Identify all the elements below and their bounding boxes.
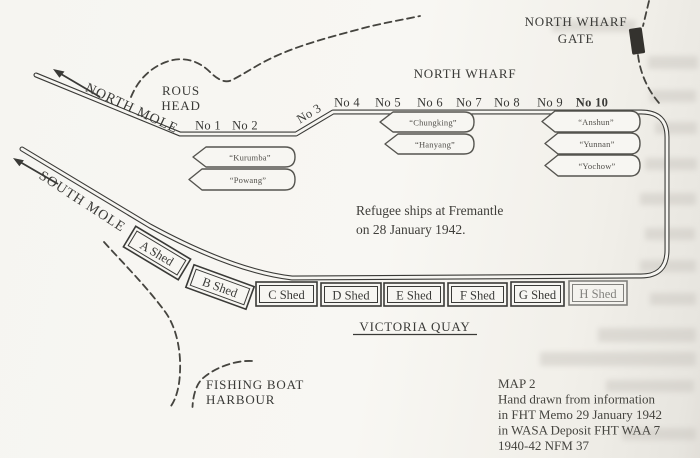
gate-road-upper [643, 1, 649, 26]
shed-h: H Shed [569, 281, 627, 305]
ship-kurumba: “Kurumba” [193, 147, 295, 167]
berth-label-9: No 9 [537, 96, 563, 110]
caption-line-4: in WASA Deposit FHT WAA 7 [498, 423, 661, 438]
caption-line-2: Hand drawn from information [498, 392, 656, 407]
ship-yochow: “Yochow” [545, 155, 640, 176]
berth-label-8: No 8 [494, 96, 520, 110]
ship-hanyang: “Hanyang” [385, 134, 474, 154]
fishing-boat-harbour-label-line2: HARBOUR [206, 392, 275, 407]
shed-a: A Shed [123, 226, 190, 280]
berth-label-6: No 6 [417, 96, 443, 110]
shed-f: F Shed [448, 283, 507, 306]
ship-name: “Chungking” [409, 118, 457, 128]
ship-name: “Yochow” [578, 161, 615, 171]
berth-label-2: No 2 [232, 119, 258, 133]
caption-line-3: in FHT Memo 29 January 1942 [498, 407, 662, 422]
caption-line-5: 1940-42 NFM 37 [498, 438, 590, 453]
berth-label-10: No 10 [576, 96, 608, 110]
shed-label: E Shed [396, 289, 433, 303]
shed-label: F Shed [460, 289, 496, 303]
north-wharf-gate-label-line2: GATE [558, 31, 594, 46]
berth-label-4: No 4 [334, 96, 360, 110]
ship-name: “Yunnan” [579, 139, 614, 149]
rous-head-label-line1: ROUS [162, 83, 200, 98]
fishing-boat-harbour-label-line1: FISHING BOAT [206, 377, 304, 392]
ship-name: “Kurumba” [229, 153, 270, 163]
berth-label-5: No 5 [375, 96, 401, 110]
ship-name: “Hanyang” [415, 140, 455, 150]
shed-e: E Shed [384, 283, 444, 306]
rous-head-label-line2: HEAD [161, 98, 200, 113]
shed-label: H Shed [579, 287, 617, 301]
ship-name: “Powang” [230, 175, 267, 185]
ship-anshun: “Anshun” [542, 111, 640, 132]
shed-label: C Shed [268, 288, 305, 302]
north-wharf-gate-label-line1: NORTH WHARF [525, 14, 628, 29]
shed-g: G Shed [511, 282, 564, 306]
ship-yunnan: “Yunnan” [545, 133, 640, 154]
shed-c: C Shed [256, 282, 317, 306]
ship-chungking: “Chungking” [380, 112, 474, 132]
berth-label-7: No 7 [456, 96, 482, 110]
shed-label: G Shed [519, 288, 557, 302]
berth-label-1: No 1 [195, 119, 221, 133]
map-svg: “Kurumba” “Powang” “Chungking” “Hanyang”… [0, 0, 700, 458]
north-wharf-gate-marker [629, 27, 645, 55]
ship-powang: “Powang” [189, 169, 295, 190]
caption-line-1: MAP 2 [498, 376, 535, 391]
scanned-map-page: “Kurumba” “Powang” “Chungking” “Hanyang”… [0, 0, 700, 458]
map-note-line2: on 28 January 1942. [356, 222, 465, 237]
page-bleed-through [540, 20, 698, 440]
victoria-quay-label: VICTORIA QUAY [359, 319, 470, 334]
north-wharf-label: NORTH WHARF [414, 66, 517, 81]
map-note-line1: Refugee ships at Fremantle [356, 203, 503, 218]
shed-d: D Shed [321, 283, 381, 306]
ship-name: “Anshun” [578, 117, 614, 127]
shed-label: D Shed [332, 289, 370, 303]
shed-b: B Shed [186, 265, 254, 309]
